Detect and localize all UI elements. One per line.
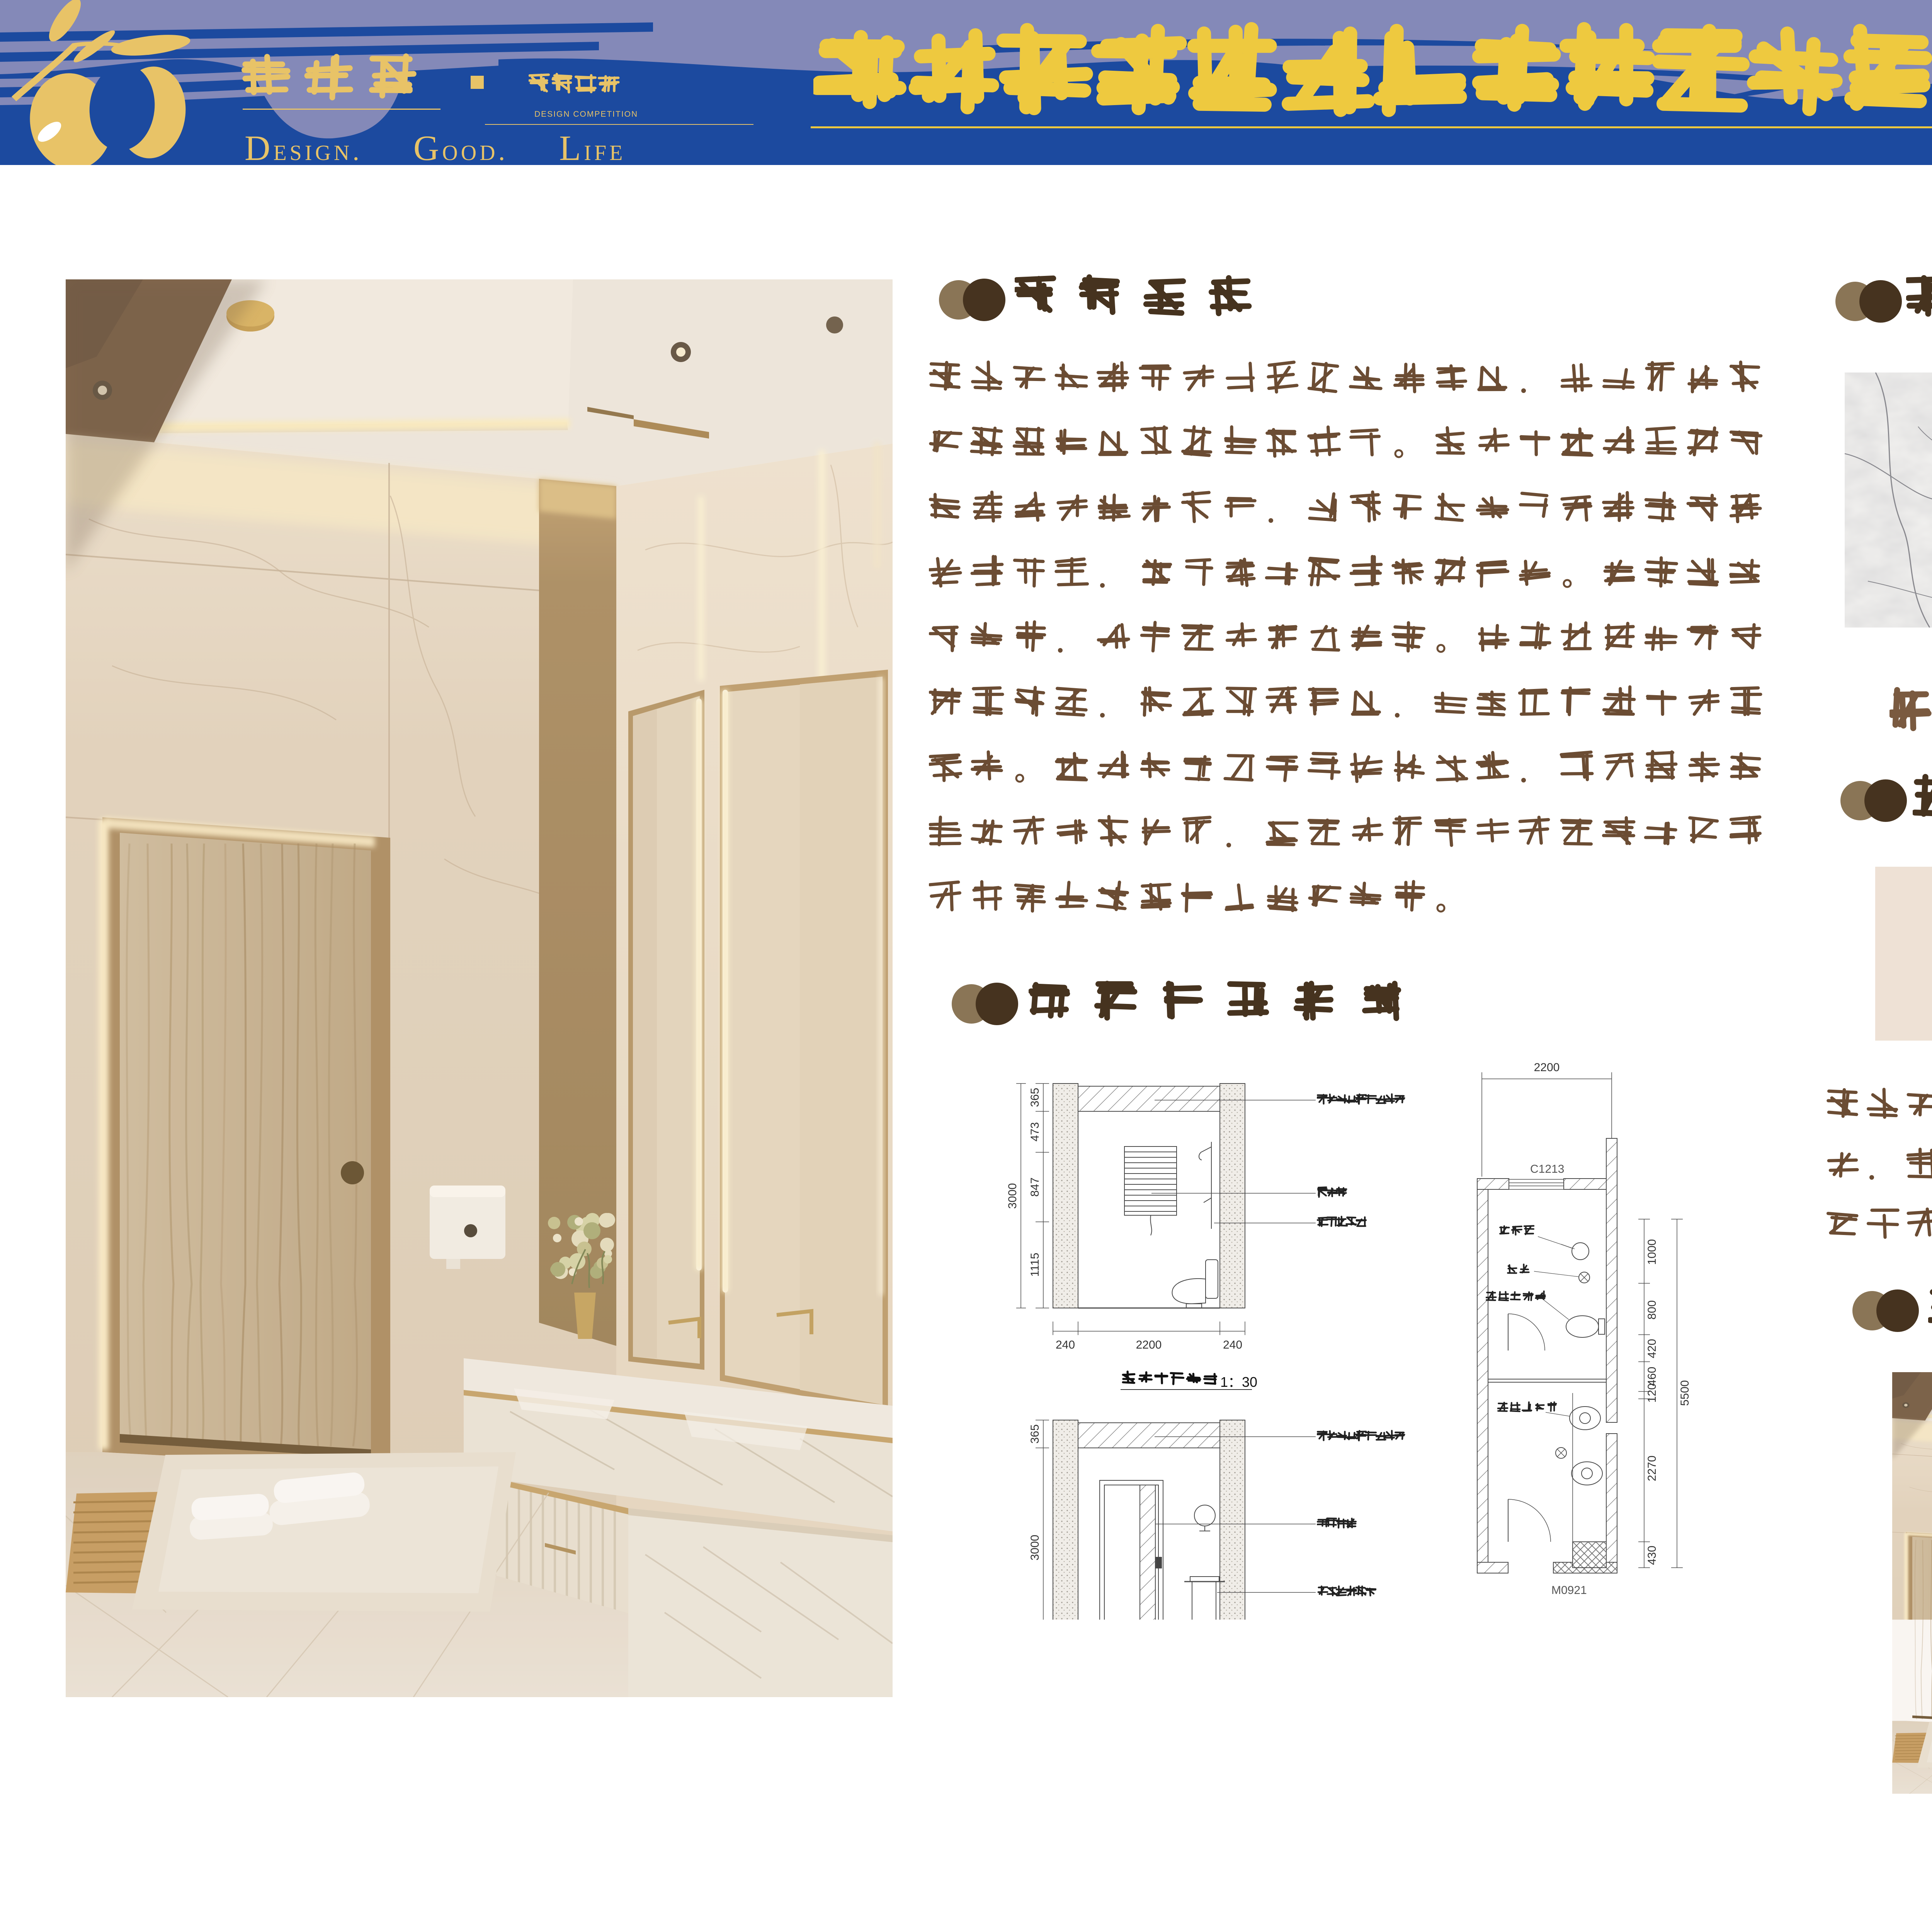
svg-text:M0921: M0921 xyxy=(1551,1584,1587,1597)
svg-text:C1213: C1213 xyxy=(1530,1163,1564,1175)
svg-text:420: 420 xyxy=(1646,1339,1658,1358)
svg-text:1000: 1000 xyxy=(1646,1239,1658,1265)
svg-text:2270: 2270 xyxy=(1646,1456,1658,1482)
svg-text:460: 460 xyxy=(1646,1367,1658,1386)
svg-text:800: 800 xyxy=(1646,1300,1658,1320)
svg-text:430: 430 xyxy=(1646,1546,1658,1565)
svg-text:120: 120 xyxy=(1646,1383,1658,1403)
svg-text:2200: 2200 xyxy=(1534,1061,1560,1074)
svg-text:5500: 5500 xyxy=(1679,1380,1691,1406)
